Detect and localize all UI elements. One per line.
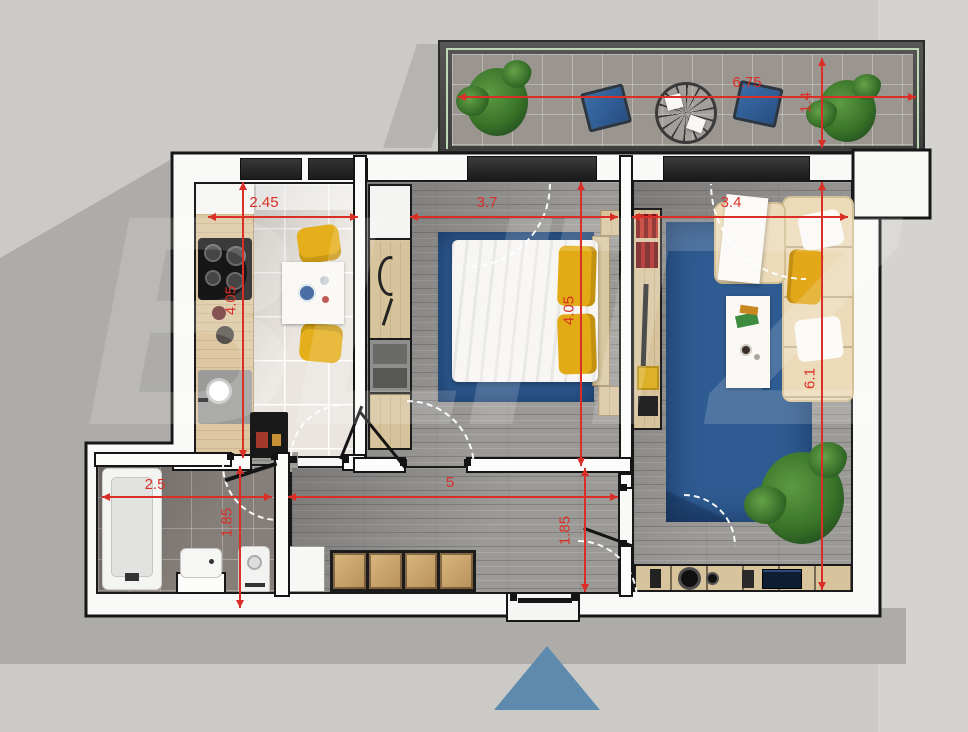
dim-bedroom-depth: 4.05	[561, 286, 578, 336]
small-disc	[706, 572, 719, 585]
door-jamb	[271, 453, 278, 460]
dim-line-bedroom-depth	[580, 182, 582, 466]
sink-bowl	[206, 378, 232, 404]
dim-line-bathroom-depth	[239, 466, 241, 608]
dim-hall-depth: 1.85	[557, 506, 574, 556]
plate-blue	[298, 284, 316, 302]
dining-chair-yellow	[298, 322, 343, 364]
washer-door	[247, 555, 262, 570]
desk-chair-leg	[382, 298, 394, 326]
dim-line-balcony-depth	[821, 58, 823, 148]
dim-bathroom-depth: 1.85	[219, 498, 236, 548]
hallway-white-cabinet	[287, 546, 325, 592]
plant-leaf	[744, 486, 788, 524]
door-jamb	[227, 453, 234, 460]
dim-line-balcony-width	[458, 96, 916, 98]
dim-living-width: 3.4	[706, 194, 756, 211]
washing-machine	[238, 546, 270, 592]
dim-line-kitchen-depth	[242, 182, 244, 458]
sink-faucet-dot	[209, 559, 214, 564]
bath-faucet	[125, 573, 139, 581]
fridge-content-yellow	[272, 434, 281, 446]
tv-set	[762, 569, 802, 589]
wardrobe-desk	[370, 242, 410, 338]
living-plant	[760, 452, 844, 544]
burner	[205, 270, 221, 286]
fridge-content-red	[256, 432, 268, 448]
hallway-wardrobes	[330, 550, 476, 592]
kitchen-jar	[216, 326, 234, 344]
dim-line-hall-depth	[584, 468, 586, 592]
dim-line-living-depth	[821, 182, 823, 590]
dim-line-kitchen-width	[208, 216, 358, 218]
desk-chair	[378, 256, 402, 296]
dining-table	[282, 262, 344, 324]
dim-hall-width: 5	[430, 474, 470, 491]
turntable-disc	[678, 567, 701, 590]
plate-red	[322, 296, 329, 303]
dim-kitchen-depth: 4.05	[223, 276, 240, 326]
wall-bedroom-living	[619, 155, 633, 473]
decor-dot	[754, 354, 760, 360]
wall-bathroom-top	[94, 452, 232, 467]
bedroom-wardrobe-column	[368, 184, 412, 450]
door-jamb	[620, 484, 627, 491]
shelf-box	[373, 344, 407, 364]
sofa-pillow-white	[794, 315, 845, 362]
door-jamb	[510, 594, 517, 601]
north-triangle-marker	[494, 646, 600, 710]
dim-living-depth: 6.1	[802, 359, 819, 399]
dim-line-bathroom-width	[102, 496, 272, 498]
tv-on-wall	[640, 284, 648, 376]
floor-plan-canvas: BLITZ 2.45 3.7 3.4 6.75 1.4 4.05 4.05 6.…	[0, 0, 968, 732]
door-jamb	[571, 594, 578, 601]
wardrobe-cell	[440, 553, 473, 589]
wardrobe-cell	[369, 553, 402, 589]
coffee-table	[726, 296, 770, 388]
entrance-step	[506, 592, 580, 622]
bathroom-sink	[180, 548, 222, 578]
red-books	[636, 242, 658, 268]
coffee-cup	[740, 344, 752, 356]
dim-balcony-depth: 1.4	[798, 83, 815, 123]
black-box	[638, 396, 658, 416]
wardrobe-shelves	[370, 338, 410, 394]
shelf-box	[373, 368, 407, 388]
speaker	[742, 570, 754, 588]
yellow-box	[637, 366, 659, 390]
plant-leaf	[808, 442, 848, 478]
bedroom-balcony-glazing	[467, 156, 597, 182]
burner	[204, 244, 222, 262]
wardrobe-cell	[333, 553, 366, 589]
dim-line-hall-width	[288, 496, 618, 498]
wardrobe-drawers	[370, 394, 410, 448]
living-media-wall	[632, 208, 662, 430]
wardrobe-white-cabinet	[370, 186, 410, 240]
dim-bathroom-width: 2.5	[130, 476, 180, 493]
living-balcony-glazing	[663, 156, 810, 182]
dim-bedroom-width: 3.7	[462, 194, 512, 211]
entrance-door-leaf	[518, 598, 572, 603]
dining-chair-yellow	[296, 223, 343, 264]
washer-slot	[245, 583, 265, 587]
speaker	[650, 569, 661, 588]
wall-bedroom-bottom-right	[466, 457, 632, 473]
dim-balcony-width: 6.75	[712, 74, 782, 91]
wardrobe-cell	[405, 553, 438, 589]
dim-line-bedroom-width	[410, 216, 618, 218]
dim-line-living-width	[632, 216, 848, 218]
faucet	[198, 398, 208, 402]
kitchen-window	[240, 158, 302, 180]
plate-small	[320, 276, 329, 285]
